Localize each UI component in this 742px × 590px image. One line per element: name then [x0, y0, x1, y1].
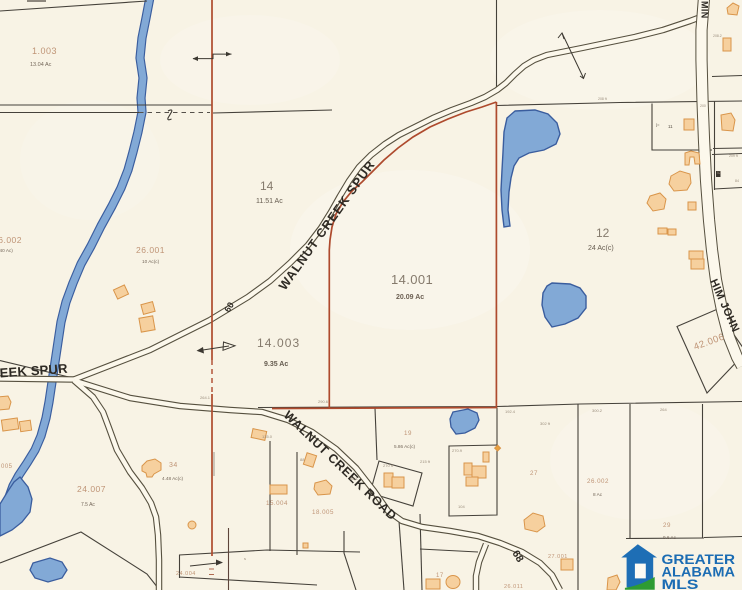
svg-text:14.001: 14.001	[391, 272, 433, 287]
svg-text:s: s	[244, 556, 246, 561]
svg-text:270 ft: 270 ft	[383, 463, 394, 468]
svg-text:MIN: MIN	[700, 1, 710, 19]
svg-text:10 Ac(c): 10 Ac(c)	[142, 259, 160, 264]
svg-text:9.35 Ac: 9.35 Ac	[264, 361, 288, 368]
svg-text:300.2: 300.2	[592, 408, 603, 413]
svg-text:5.86 Ac(c): 5.86 Ac(c)	[394, 444, 416, 449]
svg-text:104: 104	[458, 504, 465, 509]
svg-text:MLS: MLS	[662, 577, 699, 590]
svg-text:208.2: 208.2	[713, 34, 722, 38]
svg-text:24.007: 24.007	[77, 484, 106, 494]
svg-text:(40 Ac): (40 Ac)	[0, 248, 13, 253]
svg-text:24 Ac(c): 24 Ac(c)	[588, 245, 614, 252]
svg-text:005: 005	[1, 464, 13, 470]
svg-text:84: 84	[735, 179, 739, 183]
svg-text:96.1: 96.1	[350, 476, 359, 481]
svg-text:34: 34	[169, 462, 178, 469]
svg-text:12: 12	[596, 226, 610, 240]
svg-text:26.002: 26.002	[587, 478, 609, 485]
svg-text:20.09 Ac: 20.09 Ac	[396, 294, 424, 301]
svg-text:11: 11	[668, 124, 673, 129]
svg-text:4.48 Ac(c): 4.48 Ac(c)	[162, 476, 184, 481]
svg-text:13.04 Ac: 13.04 Ac	[30, 62, 52, 68]
svg-text:8 Ac: 8 Ac	[593, 492, 603, 497]
svg-text:14: 14	[260, 179, 274, 193]
svg-text:270.9: 270.9	[452, 448, 463, 453]
svg-text:14.003: 14.003	[257, 336, 300, 350]
svg-text:24.004: 24.004	[176, 571, 196, 577]
svg-text:264: 264	[660, 407, 667, 412]
svg-text:1.003: 1.003	[32, 46, 57, 56]
svg-text:302 ft: 302 ft	[540, 421, 551, 426]
svg-text:27.001: 27.001	[548, 554, 568, 560]
svg-text:200: 200	[700, 104, 706, 108]
svg-text:11.51 Ac: 11.51 Ac	[256, 198, 283, 205]
svg-text:19: 19	[404, 430, 412, 437]
svg-text:208 ft: 208 ft	[598, 97, 607, 101]
svg-text:209 ft: 209 ft	[729, 154, 738, 158]
svg-text:26.002: 26.002	[0, 235, 22, 245]
svg-text:26.011: 26.011	[504, 584, 523, 590]
svg-text:192.4: 192.4	[505, 409, 516, 414]
svg-text:88: 88	[300, 457, 305, 462]
svg-text:26.001: 26.001	[136, 245, 165, 255]
svg-text:264.1: 264.1	[200, 395, 211, 400]
svg-text:52: 52	[717, 171, 721, 175]
svg-text:18.005: 18.005	[312, 509, 334, 516]
svg-text:15.004: 15.004	[266, 500, 288, 507]
svg-text:135.0: 135.0	[262, 434, 273, 439]
svg-text:290.6: 290.6	[318, 399, 329, 404]
svg-text:27: 27	[530, 470, 538, 477]
svg-text:215 ft: 215 ft	[420, 459, 431, 464]
svg-text:7.5 Ac: 7.5 Ac	[81, 502, 95, 508]
svg-text:17: 17	[436, 573, 444, 579]
svg-text:9.6 Ac: 9.6 Ac	[663, 535, 677, 540]
svg-text:29: 29	[663, 522, 671, 529]
